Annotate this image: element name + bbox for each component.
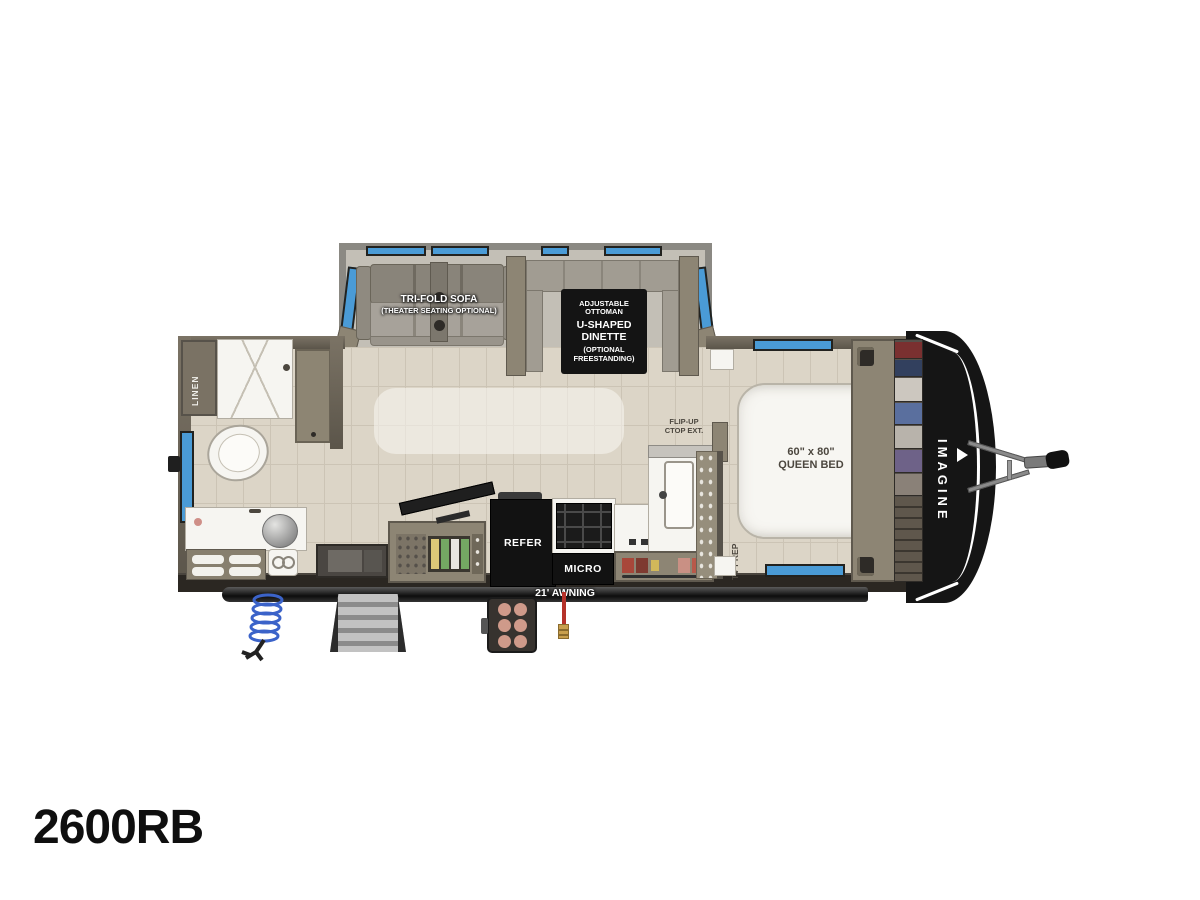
linen-label: LINEN xyxy=(190,376,200,407)
shelf-item xyxy=(441,539,449,569)
nightstand xyxy=(714,556,736,576)
clothes-stack-item xyxy=(895,403,922,425)
microwave-label: MICRO xyxy=(564,563,602,575)
sink-faucet-icon xyxy=(659,491,667,499)
towel-roll xyxy=(229,555,261,564)
outlet-icon xyxy=(641,539,648,545)
shelf-item xyxy=(461,539,469,569)
sofa-label: TRI-FOLD SOFA (THEATER SEATING OPTIONAL) xyxy=(350,294,528,315)
slideout-window-icon xyxy=(604,246,662,256)
bed-label: 60" x 80" QUEEN BED xyxy=(756,446,866,471)
entry-steps xyxy=(330,594,406,652)
speaker-cone-icon xyxy=(514,619,527,632)
dinette-wall-pillar xyxy=(679,256,699,376)
cabinet-rail xyxy=(622,575,706,578)
clothes-stack-item xyxy=(895,342,922,359)
clothes-stack-item xyxy=(895,497,922,581)
dinette-bench-side xyxy=(662,290,679,372)
bedroom-window-icon xyxy=(753,339,833,351)
cabinet-item xyxy=(678,558,690,573)
hitch-ball-knob xyxy=(1045,449,1071,470)
bed-type-label: QUEEN BED xyxy=(756,459,866,472)
speaker-cone-icon xyxy=(498,635,511,648)
breakaway-cable-icon xyxy=(236,592,296,664)
dinette-label-line6: FREESTANDING) xyxy=(573,355,634,364)
control-panel-icon xyxy=(472,534,483,574)
strap-handle xyxy=(558,624,569,639)
vanity-accessory xyxy=(268,549,298,576)
u-shaped-dinette: ADJUSTABLE OTTOMAN U-SHAPED DINETTE (OPT… xyxy=(506,256,699,376)
dinette-label-line4: DINETTE xyxy=(577,332,632,344)
cupholder-icon xyxy=(434,320,445,331)
shelf-item xyxy=(451,539,459,569)
wardrobe-bracket-icon xyxy=(857,347,874,366)
brand-label: IMAGINE xyxy=(932,388,950,573)
flip-up-label-line2: CTOP EXT. xyxy=(648,427,720,436)
bathroom-door xyxy=(295,349,331,443)
clothes-stack-item xyxy=(895,450,922,473)
clothes-stack-item xyxy=(895,426,922,449)
slideout-window-icon xyxy=(366,246,426,256)
clothes-stack-item xyxy=(895,474,922,496)
soap-dish-icon xyxy=(194,518,202,526)
shower-head-icon xyxy=(283,364,290,371)
wardrobe-bracket-icon xyxy=(857,557,874,576)
speaker-cone-icon xyxy=(498,619,511,632)
kitchen-sink xyxy=(664,461,694,529)
awning-pull-strap xyxy=(562,592,566,626)
front-wardrobe xyxy=(851,339,897,582)
speaker-mount-tab xyxy=(481,618,488,634)
outlet-icon xyxy=(629,539,636,545)
ring-icon xyxy=(282,556,295,569)
cooktop xyxy=(556,503,612,549)
cabinet-item xyxy=(622,558,634,573)
towel-shelf xyxy=(186,549,266,580)
model-label: 2600RB xyxy=(33,800,203,855)
shower xyxy=(217,339,293,419)
dinette-bench-top xyxy=(526,260,679,292)
shelf-item xyxy=(431,539,439,569)
speaker-cone-icon xyxy=(498,603,511,616)
outdoor-speaker xyxy=(487,597,537,653)
slideout-window-icon xyxy=(431,246,489,256)
towel-roll xyxy=(192,555,224,564)
entry-mat xyxy=(328,550,362,572)
refrigerator-label: REFER xyxy=(504,537,542,549)
clothes-stack-item xyxy=(895,378,922,402)
speaker-cone-icon xyxy=(514,603,527,616)
sofa-label-line2: (THEATER SEATING OPTIONAL) xyxy=(350,306,528,315)
towel-roll xyxy=(229,567,261,576)
bathroom-partition-wall xyxy=(330,336,343,449)
area-rug xyxy=(374,388,624,454)
vanity-faucet-icon xyxy=(249,509,261,513)
nightstand xyxy=(710,349,734,370)
slideout-window-icon xyxy=(541,246,569,256)
entry-tread xyxy=(364,550,382,572)
brand-triangle-icon xyxy=(957,448,968,462)
vanity-sink-bowl xyxy=(262,514,298,548)
clothes-stack-item xyxy=(895,360,922,377)
rear-bumper xyxy=(168,456,180,472)
wardrobe-clothes xyxy=(894,339,923,582)
cabinet-item xyxy=(636,558,648,573)
cabinet-item xyxy=(651,560,659,571)
dinette-label-line3: U-SHAPED xyxy=(577,320,632,332)
bedroom-window-icon xyxy=(765,564,845,577)
door-handle-icon xyxy=(311,432,316,437)
dinette-label-line2: OTTOMAN xyxy=(579,308,629,317)
entry-step-well xyxy=(316,544,388,578)
speaker-cone-icon xyxy=(514,635,527,648)
refrigerator: REFER xyxy=(490,499,556,587)
dinette-table: ADJUSTABLE OTTOMAN U-SHAPED DINETTE (OPT… xyxy=(561,289,647,374)
speaker-grille-icon xyxy=(396,534,426,574)
sofa-label-line1: TRI-FOLD SOFA xyxy=(350,294,528,306)
microwave: MICRO xyxy=(552,553,614,585)
towel-roll xyxy=(192,567,224,576)
flip-up-label: FLIP-UP CTOP EXT. xyxy=(648,418,720,435)
bed-size-label: 60" x 80" xyxy=(756,446,866,459)
entertainment-center xyxy=(388,521,486,583)
media-shelf xyxy=(428,536,470,572)
tongue-jack xyxy=(1007,460,1012,480)
dinette-bench-side xyxy=(526,290,543,372)
floorplan-canvas: TRI-FOLD SOFA (THEATER SEATING OPTIONAL)… xyxy=(0,0,1200,900)
dinette-wall-pillar xyxy=(506,256,526,376)
